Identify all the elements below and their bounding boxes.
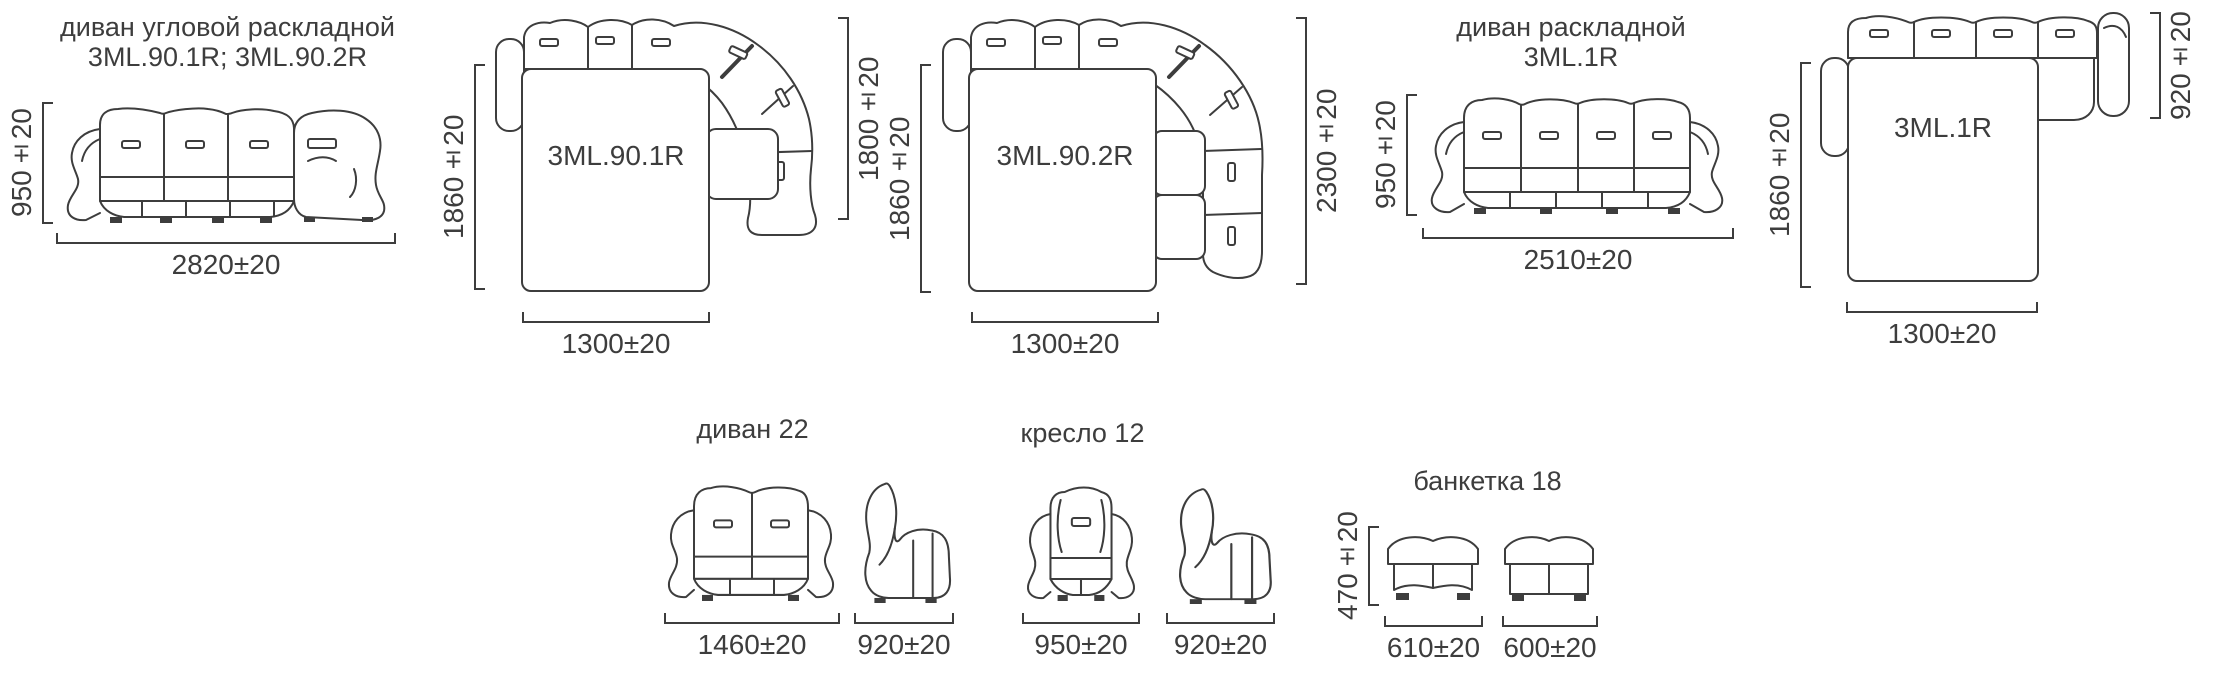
folding-sofa-title-line2: 3ML.1R [1420, 42, 1722, 72]
dimension-value: 610±20 [1387, 632, 1480, 664]
folding-sofa-title: диван раскладной 3ML.1R [1420, 12, 1722, 72]
dim-plan2-bottom: 1300±20 [971, 312, 1159, 360]
corner-sofa-title-line2: 3ML.90.1R; 3ML.90.2R [30, 42, 425, 72]
dimension-value: 2820±20 [172, 249, 281, 281]
sofa22-side-drawing [854, 476, 954, 603]
dim-plan2-right: 2300±20 [1296, 17, 1343, 285]
dimension-line [854, 613, 954, 624]
bench18-side-drawing [1502, 531, 1598, 608]
dimension-line [56, 233, 396, 244]
dim-bench18-height: 470±20 [1332, 526, 1379, 606]
dimension-value: 920±20 [2165, 12, 2197, 119]
plan2-label: 3ML.90.2R [971, 140, 1159, 172]
dim-sofa22-side-width: 920±20 [854, 613, 954, 661]
dim-plan1-left: 1860±20 [438, 64, 485, 290]
dimension-value: 1300±20 [1888, 318, 1997, 350]
dimension-line [1800, 62, 1811, 288]
dimension-value: 950±20 [1370, 94, 1402, 216]
dim-plan3-bottom: 1300±20 [1846, 302, 2038, 350]
dim-folding-sofa-front-width: 2510±20 [1422, 228, 1734, 276]
furniture-dimensions-sheet: диван угловой раскладной 3ML.90.1R; 3ML.… [0, 0, 2216, 677]
folding-sofa-plan-drawing [1820, 10, 2154, 285]
armchair12-title: кресло 12 [980, 418, 1185, 448]
dimension-line [1296, 17, 1307, 285]
dimension-line [971, 312, 1159, 323]
dimension-value: 1800±20 [853, 17, 885, 220]
dimension-value: 1860±20 [884, 64, 916, 293]
corner-sofa-title: диван угловой раскладной 3ML.90.1R; 3ML.… [30, 12, 425, 72]
dimension-value: 1860±20 [1764, 62, 1796, 288]
dimension-value: 600±20 [1503, 632, 1596, 664]
dim-corner-sofa-front-width: 2820±20 [56, 233, 396, 281]
dimension-line [838, 17, 849, 220]
dim-plan3-left: 1860±20 [1764, 62, 1811, 288]
dimension-value: 950±20 [1034, 629, 1127, 661]
dimension-line [664, 613, 840, 624]
dim-plan1-bottom: 1300±20 [522, 312, 710, 360]
dim-bench18-side-width: 600±20 [1502, 616, 1598, 664]
dimension-line [1846, 302, 2038, 313]
dimension-line [1422, 228, 1734, 239]
dim-plan3-right: 920±20 [2150, 12, 2197, 119]
dimension-value: 920±20 [857, 629, 950, 661]
dimension-line [522, 312, 710, 323]
dimension-line [42, 102, 53, 224]
dimension-line [1406, 94, 1417, 216]
dim-sofa22-front-width: 1460±20 [664, 613, 840, 661]
dim-corner-sofa-front-height: 950±20 [6, 102, 53, 224]
dimension-line [1502, 616, 1598, 627]
dim-plan1-right: 1800±20 [838, 17, 885, 220]
dimension-value: 2510±20 [1524, 244, 1633, 276]
dimension-value: 470±20 [1332, 526, 1364, 606]
dimension-value: 950±20 [6, 102, 38, 224]
folding-sofa-front-drawing [1422, 90, 1732, 218]
sofa22-title: диван 22 [650, 414, 855, 444]
armchair12-side-drawing [1168, 482, 1275, 604]
dim-bench18-front-width: 610±20 [1384, 616, 1483, 664]
corner-sofa-front-drawing [56, 99, 392, 223]
dim-folding-sofa-front-height: 950±20 [1370, 94, 1417, 216]
dimension-line [1368, 526, 1379, 606]
armchair12-front-drawing [1024, 480, 1138, 604]
dimension-value: 1300±20 [562, 328, 671, 360]
dimension-line [1022, 613, 1140, 624]
plan1-label: 3ML.90.1R [522, 140, 710, 172]
dimension-value: 1300±20 [1011, 328, 1120, 360]
dim-armchair12-front-width: 950±20 [1022, 613, 1140, 661]
folding-sofa-title-line1: диван раскладной [1420, 12, 1722, 42]
plan3-label: 3ML.1R [1848, 112, 2038, 144]
dimension-line [474, 64, 485, 290]
sofa22-front-drawing [664, 476, 838, 603]
dim-plan2-left: 1860±20 [884, 64, 931, 293]
bench18-title: банкетка 18 [1385, 466, 1590, 496]
corner-sofa-title-line1: диван угловой раскладной [30, 12, 425, 42]
dimension-line [1384, 616, 1483, 627]
dimension-line [1166, 613, 1275, 624]
dimension-value: 2300±20 [1311, 17, 1343, 285]
bench18-front-drawing [1384, 531, 1483, 608]
dimension-line [920, 64, 931, 293]
dimension-line [2150, 12, 2161, 119]
dimension-value: 1460±20 [698, 629, 807, 661]
dimension-value: 1860±20 [438, 64, 470, 290]
dim-armchair12-side-width: 920±20 [1166, 613, 1275, 661]
dimension-value: 920±20 [1174, 629, 1267, 661]
